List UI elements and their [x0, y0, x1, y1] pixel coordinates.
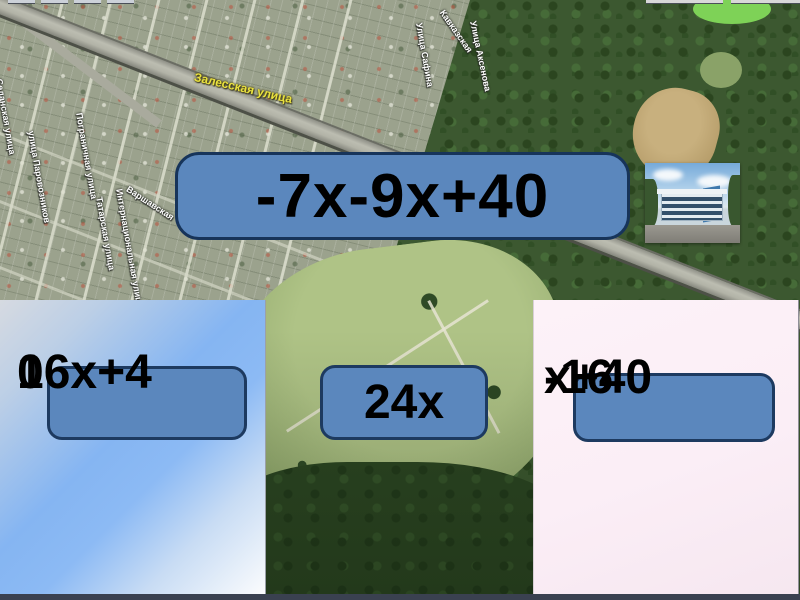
answer-button-24x[interactable]: 24x [320, 365, 488, 440]
answer-button-neg16x40[interactable] [573, 373, 775, 442]
photo-building-roof [657, 189, 727, 194]
answer-label-24x: 24x [364, 375, 444, 430]
cutoff-thumbnail[interactable] [74, 0, 101, 4]
photo-cloud [653, 169, 683, 181]
cutoff-map-button[interactable] [646, 0, 723, 4]
answer-button-16x40[interactable] [47, 366, 247, 440]
photo-building [661, 193, 723, 221]
question-button[interactable]: -7x-9x+40 [175, 152, 630, 240]
photo-road [645, 225, 740, 243]
building-photo [645, 163, 740, 243]
cutoff-thumbnail[interactable] [8, 0, 35, 4]
answer-panel-left [0, 300, 266, 594]
question-label: -7x-9x+40 [256, 161, 549, 232]
bottom-bar [0, 594, 800, 600]
cutoff-thumbnail[interactable] [107, 0, 134, 4]
quiz-slide: Залесская улица Седанская улица улица Па… [0, 0, 800, 600]
photo-tree [728, 175, 740, 226]
photo-tree [645, 179, 658, 226]
cutoff-map-button[interactable] [731, 0, 800, 4]
cutoff-thumbnail[interactable] [41, 0, 68, 4]
answer-panel-right [533, 300, 799, 594]
